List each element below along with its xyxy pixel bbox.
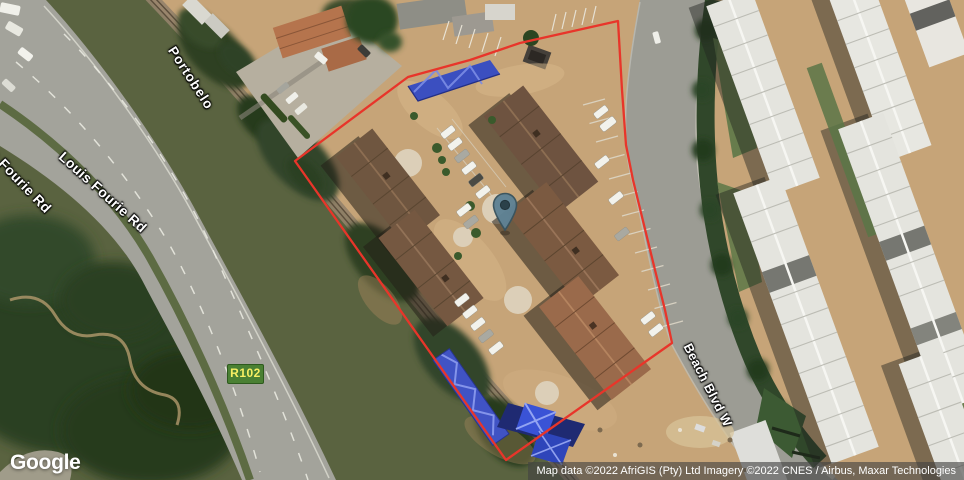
satellite-imagery	[0, 0, 964, 480]
route-badge-r102: R102	[227, 364, 264, 384]
google-logo[interactable]: Google	[10, 451, 81, 475]
map-viewport[interactable]: Portobelo Louis Fourie Rd Louis Fourie R…	[0, 0, 964, 480]
location-pin-icon[interactable]	[492, 192, 518, 232]
map-attribution: Map data ©2022 AfriGIS (Pty) Ltd Imagery…	[528, 462, 964, 480]
